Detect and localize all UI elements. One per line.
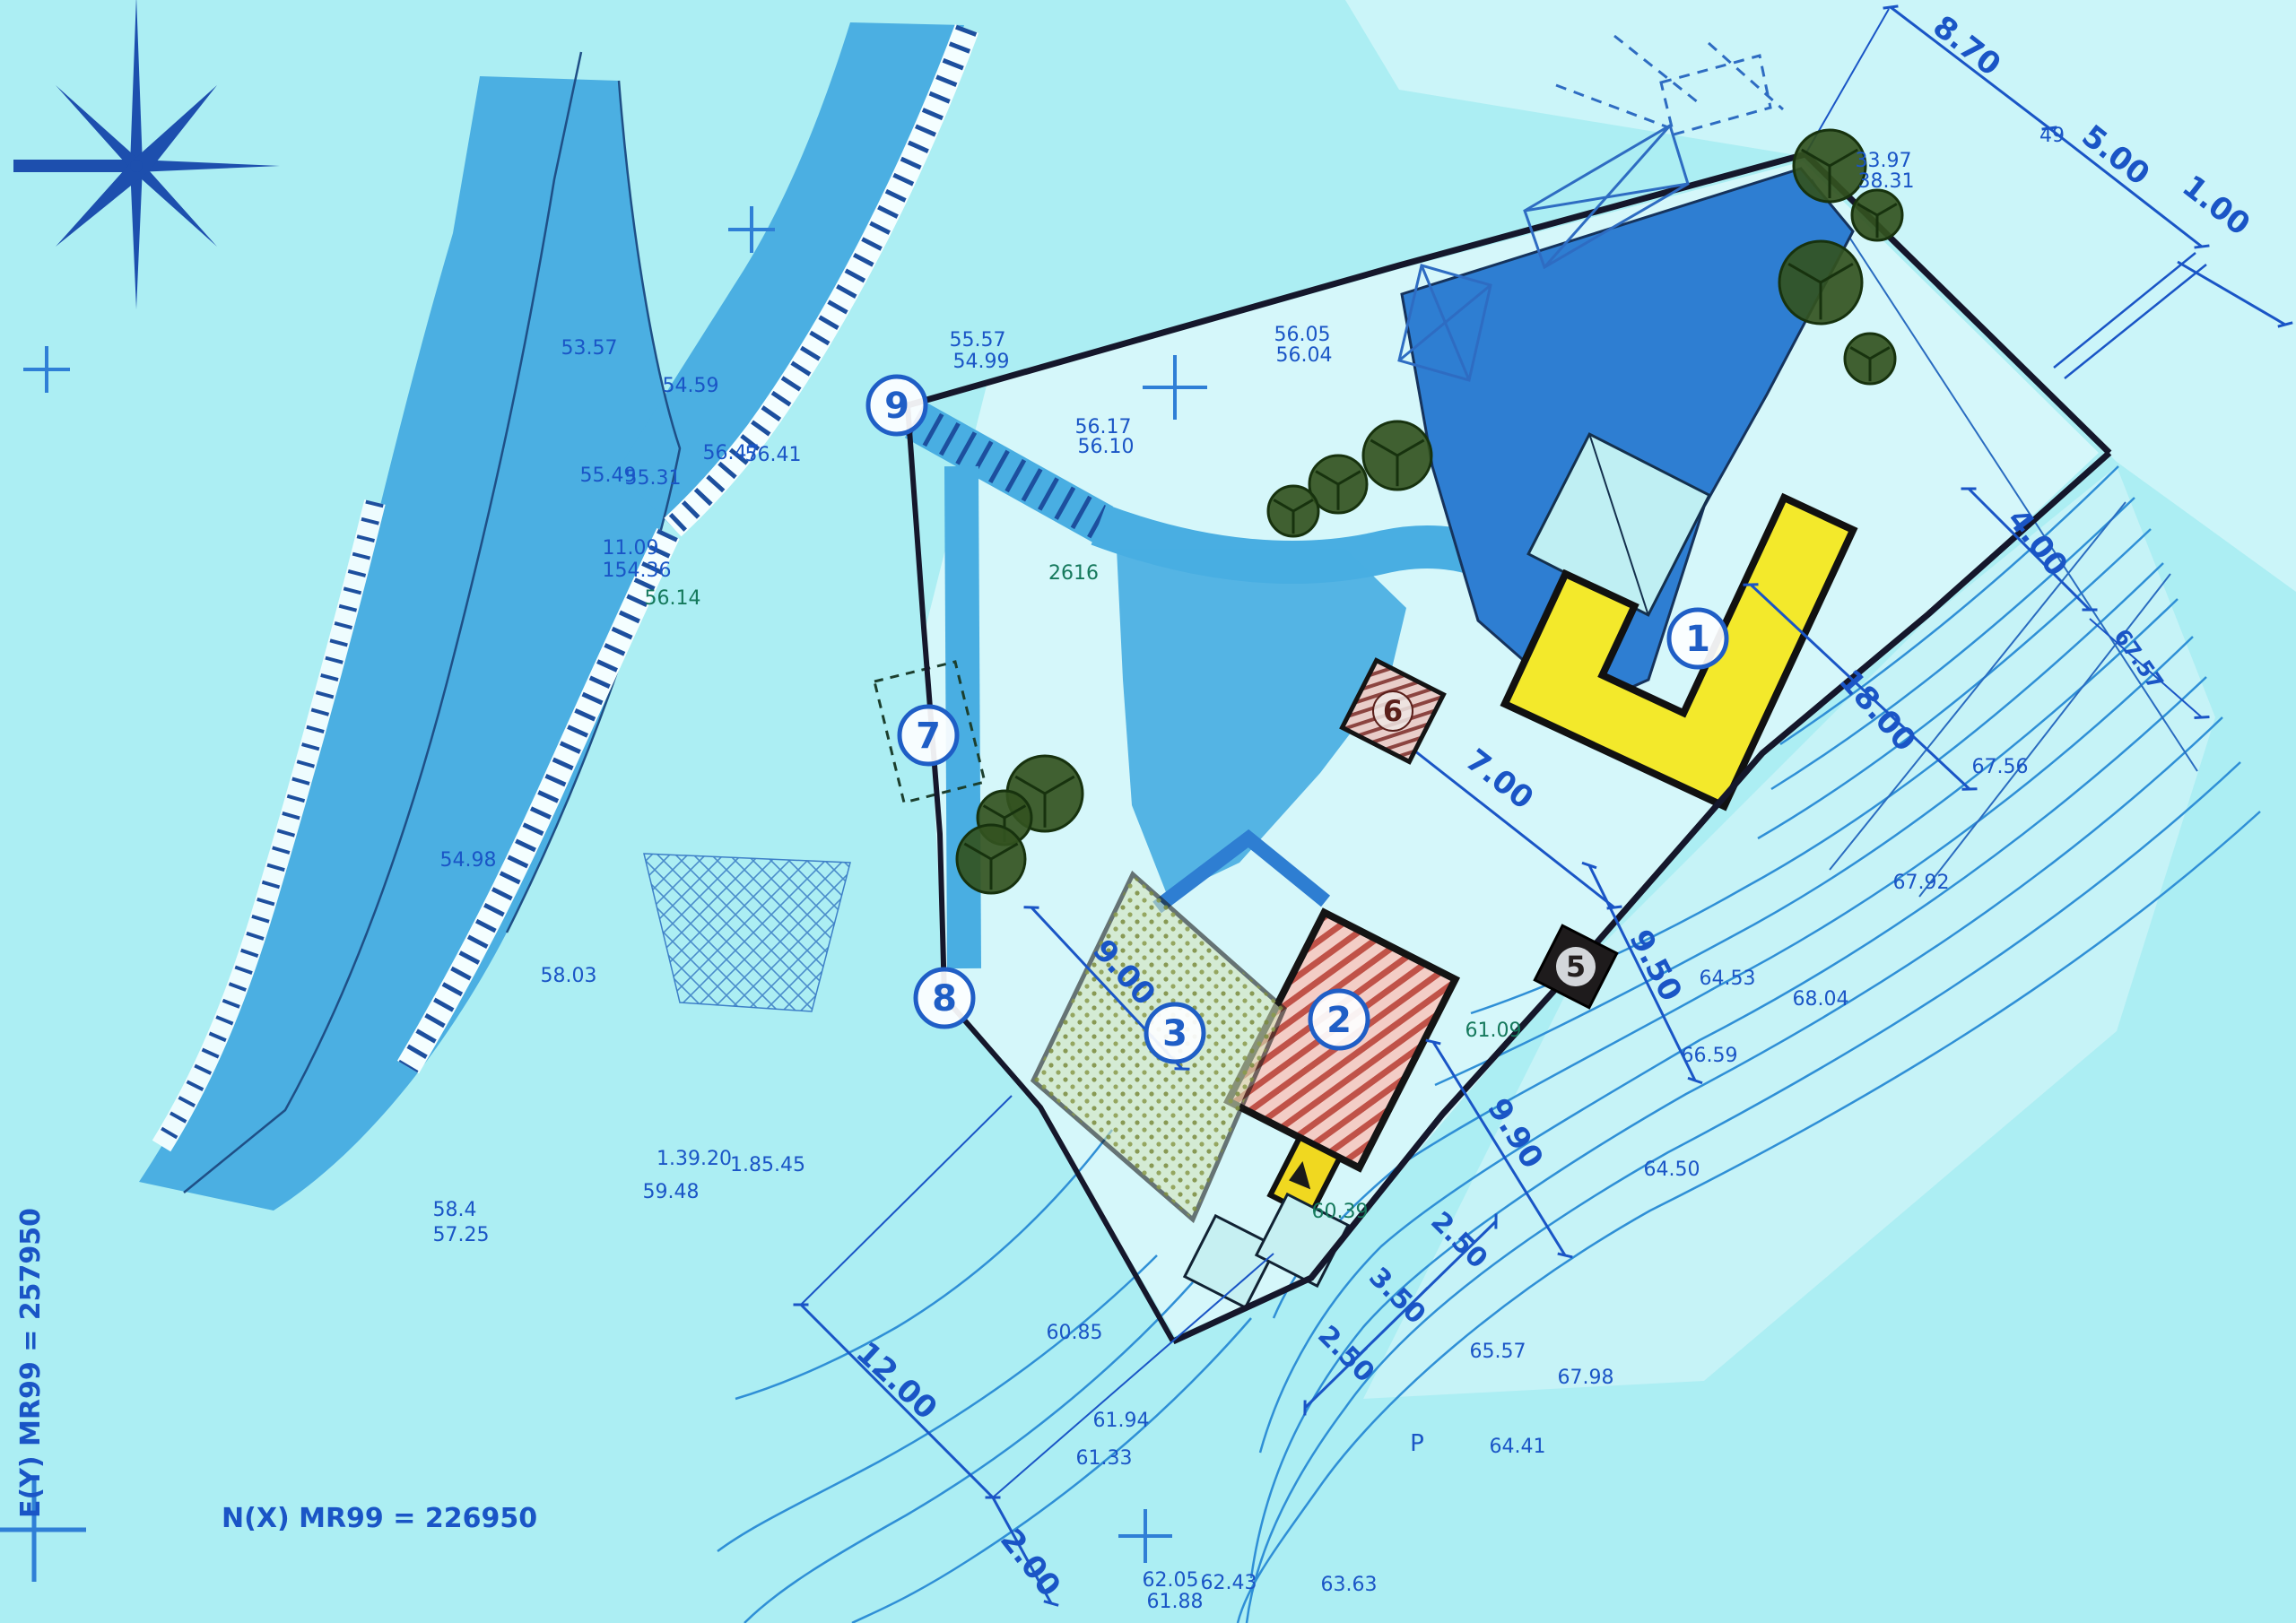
spot-elevation-label: 2616 <box>1048 562 1099 585</box>
svg-text:3: 3 <box>1162 1013 1187 1055</box>
spot-elevation-label: 65.57 <box>1470 1341 1526 1363</box>
spot-elevation-label: 60.85 <box>1047 1322 1103 1344</box>
svg-text:5: 5 <box>1566 950 1586 984</box>
spot-elevation-label: 54.98 <box>440 849 497 872</box>
spot-elevation-label: 63.63 <box>1321 1574 1378 1596</box>
spot-elevation-label: 56.05 <box>1274 324 1331 346</box>
svg-text:7: 7 <box>916 716 941 757</box>
svg-text:2: 2 <box>1326 1000 1352 1041</box>
spot-elevation-label: 1.39.20 <box>657 1148 732 1170</box>
area-badge-9: 9 <box>868 377 926 434</box>
spot-elevation-label: 11.09 <box>603 537 659 560</box>
spot-elevation-label: 64.41 <box>1490 1436 1546 1458</box>
tree-icon <box>1852 190 1902 240</box>
spot-elevation-label: 38.31 <box>1858 170 1915 193</box>
spot-elevation-label: 67.56 <box>1972 756 2029 778</box>
spot-elevation-label: P <box>1410 1430 1424 1457</box>
spot-elevation-label: 60.39 <box>1312 1201 1369 1223</box>
spot-elevation-label: 58.03 <box>541 965 597 987</box>
site-plan-page: 8.705.001.004.0018.0067.577.009.509.909.… <box>0 0 2296 1623</box>
axis-n-label: N(X) MR99 = 226950 <box>222 1503 537 1534</box>
spot-elevation-label: 54.59 <box>663 375 719 397</box>
spot-elevation-label: 62.05 <box>1143 1569 1199 1592</box>
tree-icon <box>1845 334 1895 384</box>
spot-elevation-label: 56.41 <box>745 444 802 466</box>
spot-elevation-label: 61.09 <box>1465 1020 1522 1042</box>
area-badge-1: 1 <box>1669 610 1726 667</box>
site-plan-drawing: 8.705.001.004.0018.0067.577.009.509.909.… <box>0 0 2296 1623</box>
walkway-south <box>961 466 964 968</box>
svg-text:1: 1 <box>1685 619 1710 660</box>
spot-elevation-label: 61.94 <box>1093 1410 1150 1432</box>
spot-elevation-label: 62.43 <box>1201 1572 1257 1594</box>
spot-elevation-label: 154.36 <box>603 560 672 582</box>
tree-icon <box>957 825 1025 893</box>
svg-text:8: 8 <box>932 978 957 1020</box>
spot-elevation-label: 68.04 <box>1793 988 1849 1011</box>
tree-icon <box>1779 241 1862 324</box>
spot-elevation-label: 49 <box>2039 125 2065 147</box>
area-badge-7: 7 <box>900 707 957 764</box>
spot-elevation-label: 59.48 <box>643 1181 700 1203</box>
axis-e-label: E(Y) MR99 = 257950 <box>15 1208 47 1518</box>
spot-elevation-label: 67.98 <box>1558 1367 1614 1389</box>
spot-elevation-label: 56.14 <box>645 587 701 610</box>
spot-elevation-label: 33.97 <box>1856 150 1912 172</box>
area-badge-3: 3 <box>1146 1004 1204 1062</box>
spot-elevation-label: 1.85.45 <box>730 1154 805 1176</box>
area-badge-8: 8 <box>916 969 973 1027</box>
spot-elevation-label: 61.88 <box>1147 1591 1204 1613</box>
spot-elevation-label: 56.04 <box>1276 344 1333 367</box>
spot-elevation-label: 55.31 <box>625 467 682 490</box>
area-badge-2: 2 <box>1310 991 1368 1048</box>
tree-icon <box>1363 421 1431 490</box>
svg-text:6: 6 <box>1383 694 1403 728</box>
spot-elevation-label: 53.57 <box>561 337 618 360</box>
spot-elevation-label: 58.4 <box>433 1199 477 1221</box>
spot-elevation-label: 67.92 <box>1893 872 1950 894</box>
spot-elevation-label: 56.10 <box>1078 436 1135 458</box>
tree-icon <box>1268 486 1318 536</box>
spot-elevation-label: 64.53 <box>1700 968 1756 990</box>
spot-elevation-label: 61.33 <box>1076 1447 1133 1470</box>
spot-elevation-label: 57.25 <box>433 1224 490 1246</box>
spot-elevation-label: 66.59 <box>1682 1045 1738 1067</box>
svg-text:9: 9 <box>884 386 909 427</box>
spot-elevation-label: 64.50 <box>1644 1159 1700 1181</box>
spot-elevation-label: 54.99 <box>953 351 1010 373</box>
spot-elevation-label: 55.57 <box>950 329 1006 352</box>
